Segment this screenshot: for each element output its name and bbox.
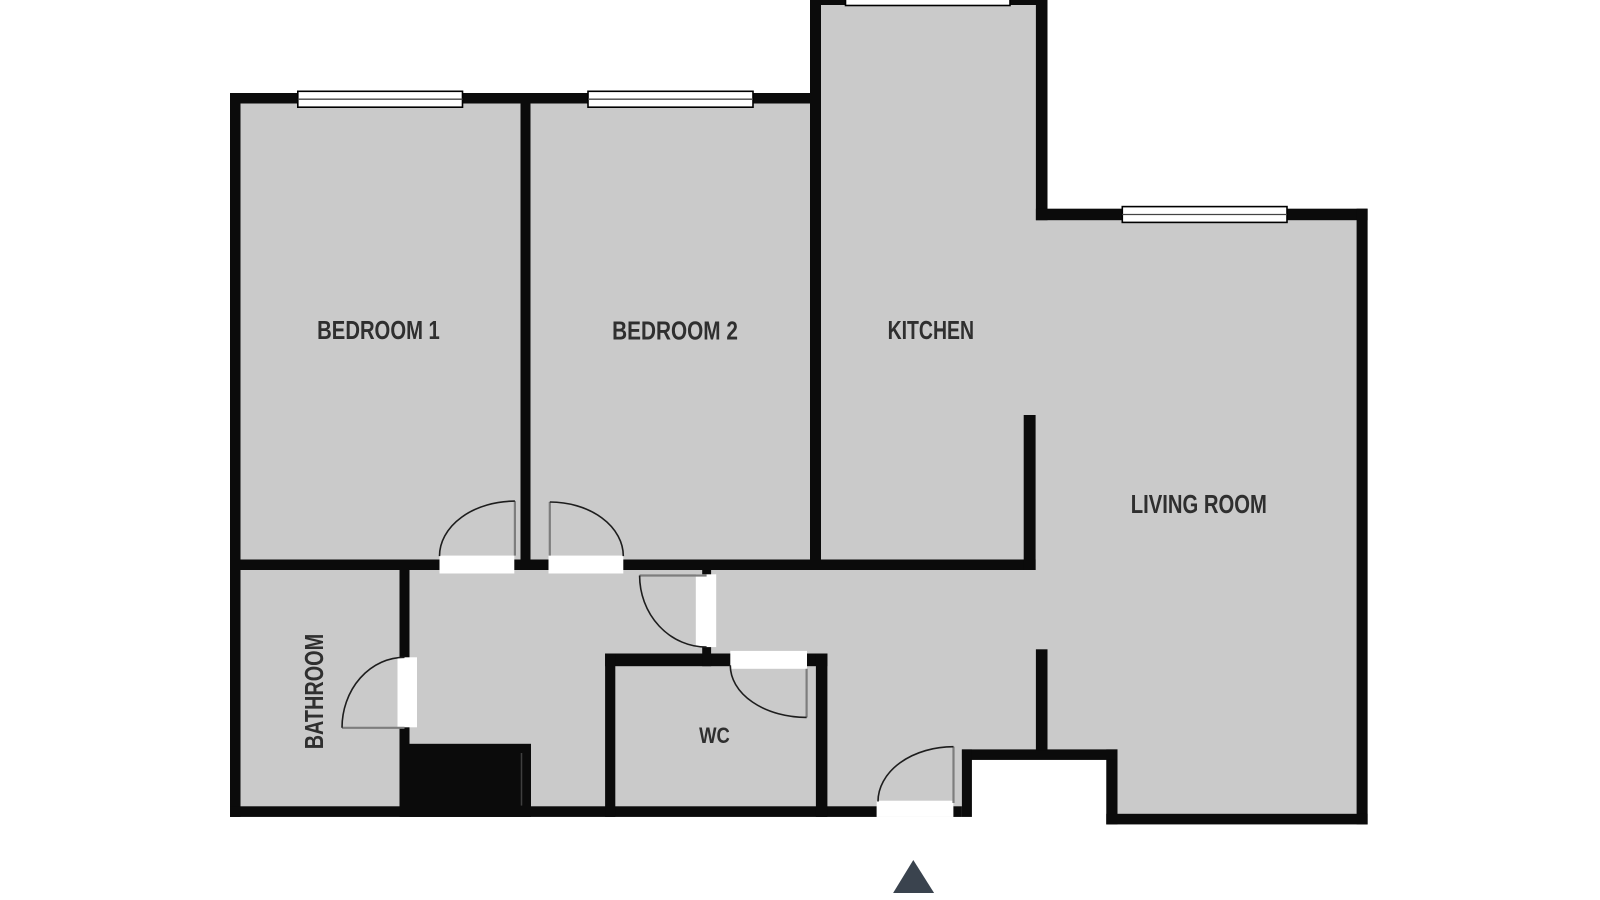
svg-text:BEDROOM 1: BEDROOM 1 <box>317 315 440 344</box>
svg-text:LIVING ROOM: LIVING ROOM <box>1131 490 1267 519</box>
svg-text:KITCHEN: KITCHEN <box>888 315 974 345</box>
svg-text:WC: WC <box>699 723 730 748</box>
svg-text:BATHROOM: BATHROOM <box>299 634 328 749</box>
svg-text:BEDROOM 2: BEDROOM 2 <box>612 317 738 346</box>
